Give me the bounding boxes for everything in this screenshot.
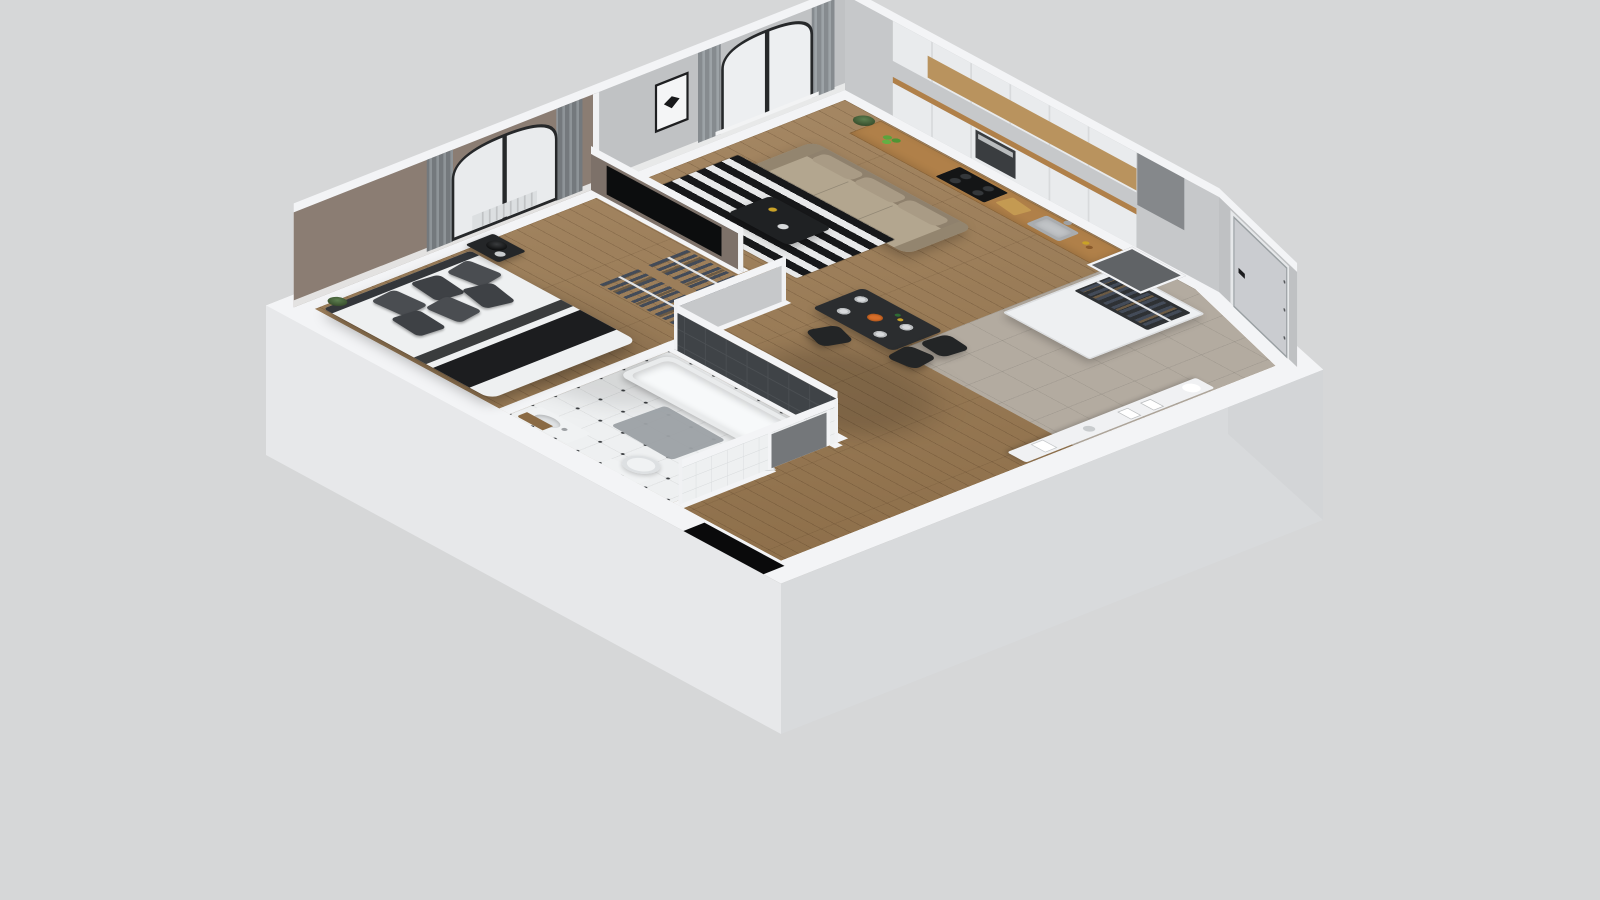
console-frame bbox=[1140, 399, 1164, 411]
plate bbox=[852, 295, 871, 304]
console-box bbox=[1032, 441, 1056, 452]
bottle bbox=[893, 313, 902, 317]
bottle bbox=[896, 318, 905, 322]
console-plant bbox=[1178, 382, 1204, 394]
console-frame bbox=[1117, 408, 1141, 420]
fruit-bowl bbox=[864, 312, 887, 323]
console-vase bbox=[1080, 425, 1097, 433]
plate bbox=[897, 323, 916, 332]
vanity-faucet bbox=[560, 427, 569, 431]
floorplan-render bbox=[0, 0, 1600, 900]
plate bbox=[834, 307, 853, 316]
plate bbox=[871, 330, 890, 339]
